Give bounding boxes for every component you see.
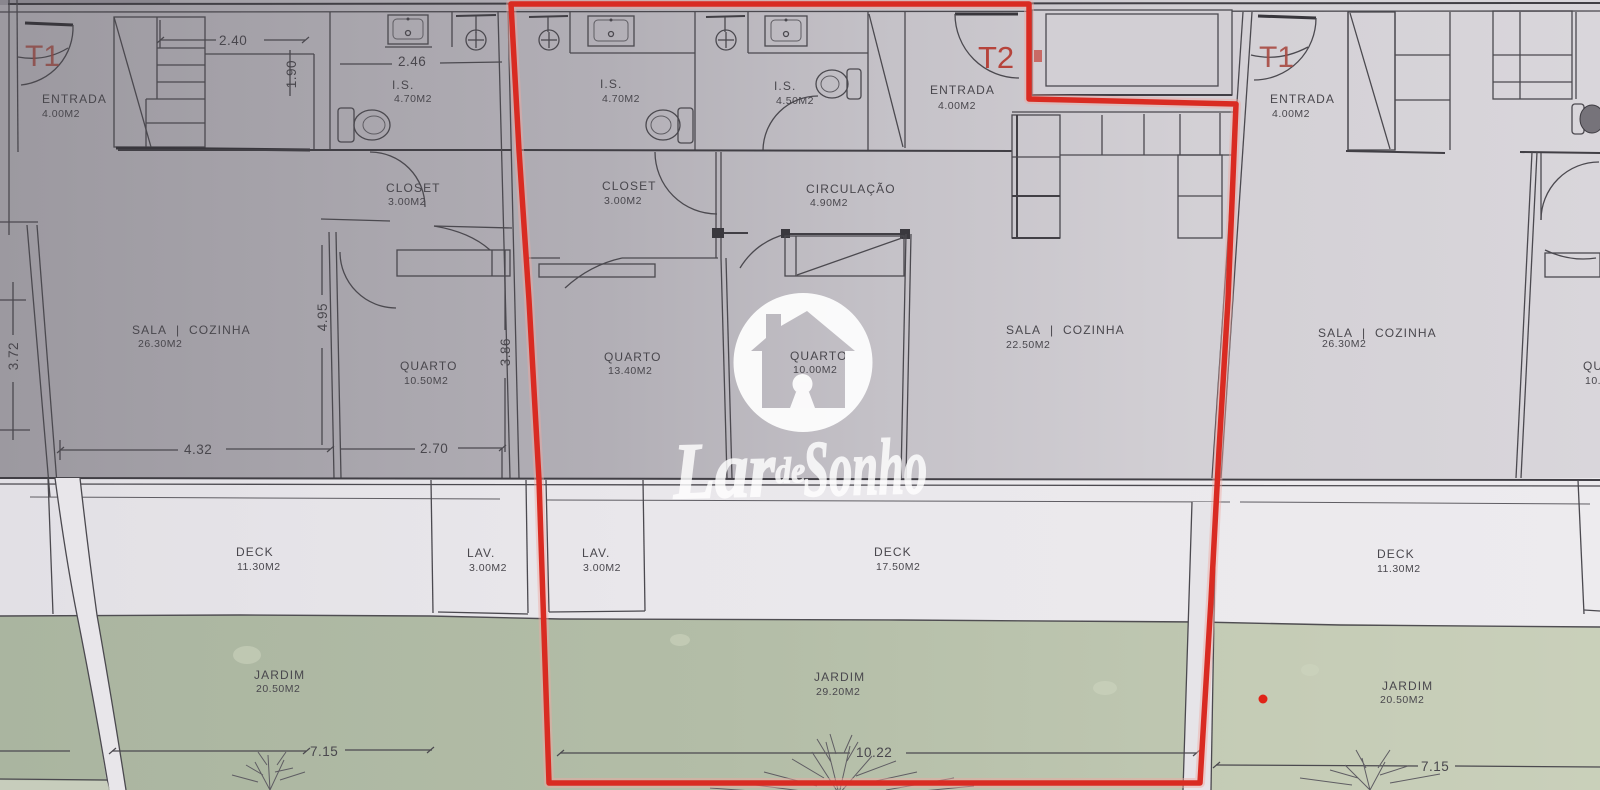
svg-text:CIRCULAÇÃO: CIRCULAÇÃO [806, 182, 896, 196]
svg-text:4.00M2: 4.00M2 [938, 100, 976, 112]
svg-text:11.30M2: 11.30M2 [1377, 563, 1421, 575]
svg-text:29.20M2: 29.20M2 [816, 686, 860, 698]
svg-text:20.50M2: 20.50M2 [256, 683, 300, 695]
svg-text:QUARTO: QUARTO [1583, 359, 1600, 373]
svg-text:4.50M2: 4.50M2 [776, 95, 814, 107]
svg-text:3.00M2: 3.00M2 [388, 196, 426, 208]
svg-text:26.30M2: 26.30M2 [138, 338, 182, 350]
svg-text:DECK: DECK [236, 545, 274, 559]
svg-text:ENTRADA: ENTRADA [1270, 92, 1335, 106]
svg-text:4.70M2: 4.70M2 [602, 93, 640, 105]
svg-text:T1: T1 [1259, 41, 1294, 74]
svg-text:LAV.: LAV. [467, 546, 495, 560]
svg-text:3.72: 3.72 [6, 342, 21, 370]
svg-text:10.22: 10.22 [856, 745, 892, 760]
svg-text:26.30M2: 26.30M2 [1322, 338, 1366, 350]
svg-text:10.50M2: 10.50M2 [404, 375, 448, 387]
svg-text:7.15: 7.15 [310, 744, 338, 759]
svg-text:11.30M2: 11.30M2 [237, 561, 281, 573]
svg-text:QUARTO: QUARTO [604, 350, 662, 364]
svg-text:7.15: 7.15 [1421, 759, 1449, 774]
svg-text:DECK: DECK [874, 545, 912, 559]
svg-text:QUARTO: QUARTO [400, 359, 458, 373]
svg-text:JARDIM: JARDIM [814, 670, 865, 684]
svg-text:JARDIM: JARDIM [254, 668, 305, 682]
svg-text:3.00M2: 3.00M2 [583, 562, 621, 574]
svg-text:ENTRADA: ENTRADA [42, 92, 107, 106]
svg-text:10.50M2: 10.50M2 [1585, 375, 1600, 387]
svg-text:3.00M2: 3.00M2 [604, 195, 642, 207]
svg-text:SALA | COZINHA: SALA | COZINHA [1006, 323, 1125, 337]
svg-text:JARDIM: JARDIM [1382, 679, 1433, 693]
svg-text:I.S.: I.S. [774, 79, 796, 93]
svg-text:4.90M2: 4.90M2 [810, 197, 848, 209]
svg-text:20.50M2: 20.50M2 [1380, 694, 1424, 706]
svg-text:CLOSET: CLOSET [602, 179, 657, 193]
svg-text:3.00M2: 3.00M2 [469, 562, 507, 574]
svg-text:3.86: 3.86 [498, 338, 513, 366]
svg-text:1.90: 1.90 [284, 60, 299, 88]
svg-text:I.S.: I.S. [600, 77, 622, 91]
svg-text:4.70M2: 4.70M2 [394, 93, 432, 105]
svg-text:2.40: 2.40 [219, 33, 247, 48]
svg-text:4.32: 4.32 [184, 442, 212, 457]
svg-text:T1: T1 [25, 40, 60, 73]
svg-text:4.00M2: 4.00M2 [1272, 108, 1310, 120]
svg-text:10.00M2: 10.00M2 [793, 364, 837, 376]
svg-text:2.46: 2.46 [398, 54, 426, 69]
svg-text:LAV.: LAV. [582, 546, 610, 560]
svg-text:17.50M2: 17.50M2 [876, 561, 920, 573]
svg-text:ENTRADA: ENTRADA [930, 83, 995, 97]
svg-text:de: de [775, 450, 806, 491]
svg-text:SALA | COZINHA: SALA | COZINHA [132, 323, 251, 337]
svg-text:I.S.: I.S. [392, 78, 414, 92]
svg-text:Lar: Lar [671, 426, 777, 517]
svg-text:QUARTO: QUARTO [790, 349, 848, 363]
svg-text:Sonho: Sonho [802, 423, 928, 514]
svg-text:2.70: 2.70 [420, 441, 448, 456]
svg-text:4.00M2: 4.00M2 [42, 108, 80, 120]
svg-text:13.40M2: 13.40M2 [608, 365, 652, 377]
svg-text:4.95: 4.95 [315, 303, 330, 331]
svg-text:CLOSET: CLOSET [386, 181, 441, 195]
svg-text:22.50M2: 22.50M2 [1006, 339, 1050, 351]
svg-text:DECK: DECK [1377, 547, 1415, 561]
svg-text:T2: T2 [978, 40, 1014, 75]
